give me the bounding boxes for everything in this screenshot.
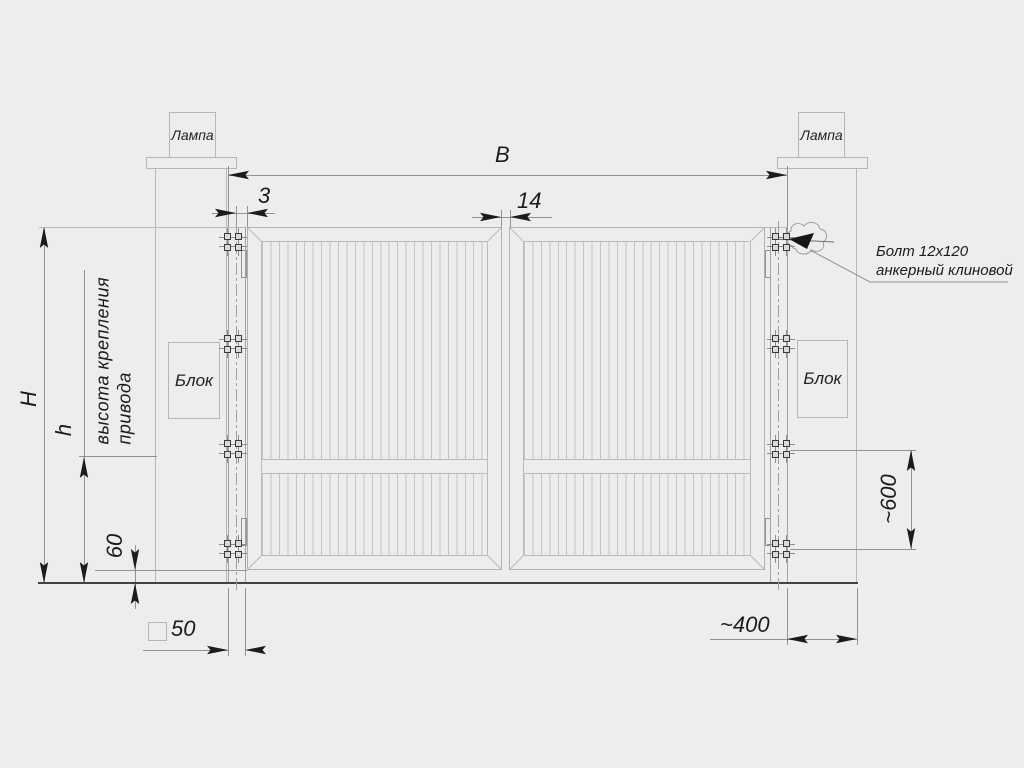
hinge-profile-right-inner [770, 227, 771, 583]
anchor-bracket-right [767, 330, 795, 358]
drive-height-note-line1: высота крепления [92, 270, 114, 445]
hinge-profile-left-outer [228, 227, 229, 583]
gate-drawing: Лампа Лампа Блок Блок B 3 14 H [0, 0, 1024, 768]
anchor-bracket-left [219, 535, 247, 563]
bolt-callout-line1: Болт 12x120 [876, 244, 968, 259]
dim-width-ext-right [787, 166, 788, 227]
leaf-mid-rail-left [261, 459, 488, 474]
drive-block-left: Блок [168, 342, 220, 419]
dim-driveheight-ext [79, 456, 157, 457]
drive-block-label-left: Блок [175, 371, 213, 391]
dim-postwidth-line [710, 639, 857, 640]
drive-height-note-line2: привода [114, 270, 136, 445]
dim-postgap-ext-a [236, 206, 237, 228]
dim-width-label: B [495, 144, 510, 166]
dim-height-label: H [18, 387, 44, 411]
dim-driveheight-line [84, 270, 85, 583]
dim-width-ext-left [228, 166, 229, 227]
bolt-callout-line2: анкерный клиновой [876, 263, 1013, 278]
dim-driveheight-label: h [53, 418, 79, 442]
dim-bracketspacing-ext-bottom [790, 549, 916, 550]
drive-height-note: высота крепления привода [92, 270, 136, 445]
lamp-box-right: Лампа [798, 112, 845, 158]
dim-bracketspacing-line [911, 450, 912, 549]
dim-profile-label: 50 [171, 618, 195, 640]
square-symbol-icon [148, 622, 167, 641]
dim-postgap-line [212, 213, 275, 214]
drive-block-label-right: Блок [803, 369, 841, 389]
hinge-profile-left-inner [245, 227, 246, 583]
dim-postwidth-label: ~400 [720, 614, 770, 636]
dim-centergap-line [472, 217, 552, 218]
dim-postgap-label: 3 [258, 185, 270, 207]
dim-bracketspacing-ext-top [790, 450, 916, 451]
anchor-bracket-left [219, 330, 247, 358]
gate-bottom-ext-left [95, 570, 247, 571]
dim-clearance-line [135, 545, 136, 609]
dim-width-line [228, 175, 787, 176]
dim-profile-line [143, 650, 228, 651]
drive-block-right: Блок [797, 340, 848, 418]
ext-post-right-a [787, 588, 788, 645]
anchor-bracket-right [767, 535, 795, 563]
ext-post-right-b [857, 588, 858, 645]
dim-height-line [44, 227, 45, 583]
dim-postgap-ext-b [247, 206, 248, 227]
leaf-panel-right [523, 241, 751, 556]
dim-bracketspacing-label: ~600 [878, 467, 904, 531]
dim-centergap-ext-a [501, 210, 502, 228]
ext-profile-left-b [245, 588, 246, 656]
lamp-box-left: Лампа [169, 112, 216, 158]
leaf-panel-left [261, 241, 488, 556]
anchor-bracket-right [767, 228, 795, 256]
dim-clearance-label: 60 [104, 529, 130, 563]
anchor-bracket-right [767, 435, 795, 463]
left-post-cap [146, 157, 237, 169]
lamp-label-right: Лампа [800, 127, 842, 143]
ext-profile-left-a [228, 588, 229, 656]
leaf-mid-rail-right [523, 459, 751, 474]
dim-centergap-ext-b [510, 210, 511, 228]
ground-line [38, 582, 858, 584]
anchor-bracket-left [219, 228, 247, 256]
gate-top-ext-left [39, 227, 247, 228]
anchor-bracket-left [219, 435, 247, 463]
right-post-cap [777, 157, 868, 169]
lamp-label-left: Лампа [171, 127, 213, 143]
dim-centergap-label: 14 [517, 190, 541, 212]
hinge-profile-right-outer [787, 227, 788, 583]
